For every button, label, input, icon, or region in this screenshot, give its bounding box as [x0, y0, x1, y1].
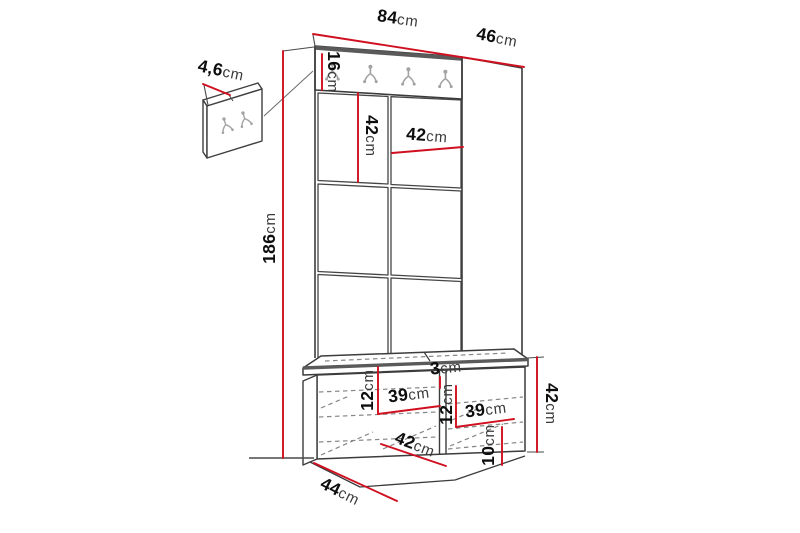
dim-label-right-panel-width: 42cm [406, 126, 449, 147]
dim-label-bottom-compartment-height: 10cm [480, 424, 498, 466]
bench-left-face [303, 375, 317, 465]
dim-line-mini-panel-depth [203, 84, 230, 95]
dim-label-bench-height: 42cm [542, 383, 560, 425]
furniture-line-drawing [0, 0, 800, 533]
dim-label-rail-height: 16cm [324, 51, 342, 93]
dim-label-total-height: 186cm [261, 212, 279, 264]
dim-label-divider-thickness: 3cm [429, 357, 462, 378]
dim-label-left-compartment-height: 12cm [359, 369, 377, 411]
dim-label-right-compartment-height: 12cm [438, 383, 456, 425]
dim-label-left-panel-height: 42cm [362, 115, 380, 157]
diagram-canvas: 84cm 46cm 4,6cm 16cm 42cm 42cm 186cm 3cm… [0, 0, 800, 533]
dim-line-top-depth [467, 58, 524, 67]
leader-line [264, 71, 313, 116]
mini-hook-panel [203, 83, 262, 158]
